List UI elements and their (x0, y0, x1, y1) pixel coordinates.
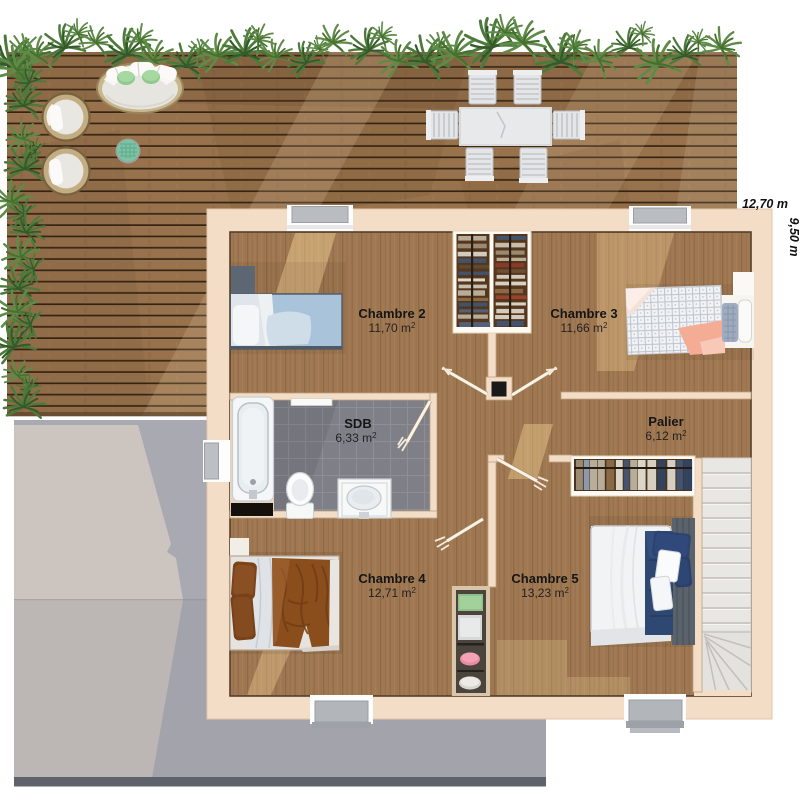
svg-text:Palier: Palier (648, 414, 683, 429)
svg-text:SDB: SDB (344, 416, 371, 431)
svg-text:Chambre 2: Chambre 2 (358, 306, 425, 321)
svg-text:Chambre 4: Chambre 4 (358, 571, 426, 586)
svg-text:Chambre 5: Chambre 5 (511, 571, 578, 586)
svg-text:12,71 m2: 12,71 m2 (368, 586, 416, 600)
svg-text:Chambre 3: Chambre 3 (550, 306, 617, 321)
svg-text:6,33 m2: 6,33 m2 (335, 431, 377, 445)
svg-text:12,70 m: 12,70 m (742, 197, 788, 211)
svg-text:6,12 m2: 6,12 m2 (645, 429, 687, 443)
svg-text:11,70 m2: 11,70 m2 (369, 321, 416, 335)
svg-text:9,50 m: 9,50 m (787, 218, 800, 257)
svg-text:13,23 m2: 13,23 m2 (521, 586, 569, 600)
svg-text:11,66 m2: 11,66 m2 (561, 321, 608, 335)
